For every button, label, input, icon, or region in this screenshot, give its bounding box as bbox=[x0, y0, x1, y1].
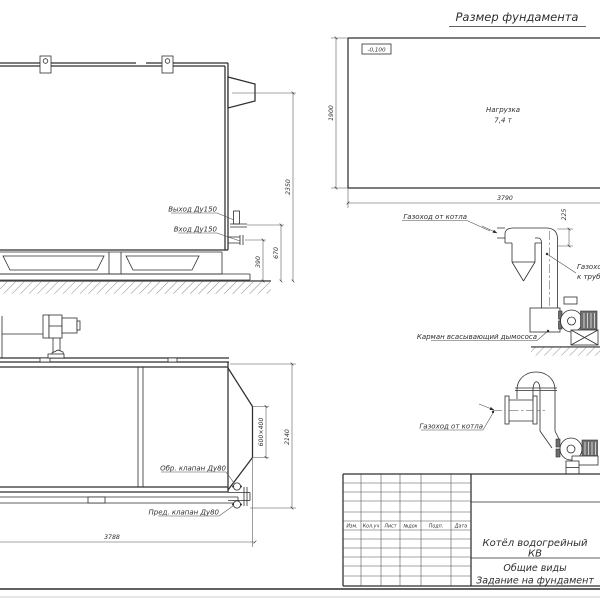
from-boiler-label-2: Газоход от котла bbox=[419, 423, 483, 431]
doc-type-line2: Задание на фундамент bbox=[476, 576, 594, 587]
dim-225: 225 bbox=[561, 209, 568, 221]
to-stack-leader bbox=[547, 254, 576, 273]
outlet-pipe-fitting bbox=[230, 211, 247, 227]
flue-vertical-duct bbox=[535, 228, 558, 320]
col-list: Лист bbox=[383, 524, 396, 530]
load-value: 7,4 т bbox=[494, 117, 512, 125]
elevation-mark: -0,100 bbox=[367, 48, 385, 54]
dim-3790: 3790 bbox=[497, 195, 513, 202]
plan-view-dimensions: 3788 2140 600×400 bbox=[0, 364, 296, 547]
ground-hatch-upper-detail bbox=[531, 347, 600, 356]
motor bbox=[62, 318, 77, 333]
outlet-label: Выход Ду150 bbox=[168, 206, 217, 214]
plan-body-outline bbox=[0, 358, 253, 503]
flue-duct-detail-lower: Газоход от котла bbox=[419, 372, 598, 474]
col-data: Дата bbox=[454, 524, 467, 530]
col-izm: Изм. bbox=[346, 524, 357, 530]
plan-right-pipework bbox=[228, 483, 250, 508]
flow-arrow bbox=[482, 226, 497, 233]
dim-670: 670 bbox=[273, 247, 280, 259]
flue-outlet-nozzle bbox=[228, 77, 255, 108]
engineering-drawing: Выход Ду150 Вход Ду150 2350 670 390 bbox=[0, 0, 600, 600]
grid-rows bbox=[343, 483, 471, 576]
safety-valve bbox=[233, 501, 240, 508]
boiler-side-view: Выход Ду150 Вход Ду150 2350 670 390 bbox=[0, 56, 296, 294]
check-valve bbox=[233, 483, 240, 490]
smoke-exhauster-plan bbox=[2, 315, 80, 362]
foundation-outline bbox=[348, 38, 600, 188]
elbow-assembly bbox=[515, 372, 560, 448]
load-label: Нагрузка bbox=[486, 106, 520, 114]
dim-1900: 1900 bbox=[328, 105, 335, 121]
boiler-outlet-duct bbox=[505, 396, 537, 424]
inlet-label: Вход Ду150 bbox=[174, 226, 218, 234]
flue-duct-detail-upper: Газоход от котла 225 Газоход к bbox=[402, 209, 600, 356]
check-valve-label: Обр. клапан Ду80 bbox=[160, 465, 226, 473]
safety-valve-label: Пред. клапан Ду80 bbox=[149, 509, 220, 517]
doc-type-line1: Общие виды bbox=[503, 563, 567, 574]
smoke-fan-2 bbox=[556, 438, 598, 474]
boiler-body-outline bbox=[0, 56, 255, 250]
flow-arrow-2 bbox=[479, 404, 494, 410]
foundation-plan: Размер фундамента -0,100 Нагрузка 7,4 т … bbox=[328, 10, 600, 208]
dim-3788: 3788 bbox=[104, 534, 120, 541]
dim-2350: 2350 bbox=[285, 179, 292, 195]
check-valve-leader bbox=[161, 472, 234, 483]
dim-2140: 2140 bbox=[284, 429, 291, 445]
from-boiler-leader bbox=[402, 221, 490, 232]
col-podp: Подп. bbox=[429, 524, 444, 530]
to-stack-label-1: Газоход bbox=[577, 263, 600, 271]
foundation-dimensions: 1900 3790 bbox=[328, 38, 600, 208]
boiler-plan-view: Обр. клапан Ду80 Пред. клапан Ду80 3788 … bbox=[0, 315, 296, 547]
offset-dimension: 225 bbox=[558, 209, 574, 246]
dim-390: 390 bbox=[255, 256, 262, 268]
cyclone bbox=[497, 228, 542, 281]
from-boiler-label: Газоход от котла bbox=[403, 213, 467, 221]
boiler-base-frame bbox=[0, 252, 250, 280]
drawing-sheet: Выход Ду150 Вход Ду150 2350 670 390 bbox=[0, 0, 600, 600]
ground-hatch bbox=[0, 281, 271, 294]
pocket-label: Карман всасывающий дымососа bbox=[417, 333, 537, 341]
dim-600x400: 600×400 bbox=[258, 418, 265, 447]
foundation-title: Размер фундамента bbox=[456, 10, 579, 24]
to-stack-label-2: к трубе bbox=[577, 273, 600, 281]
suction-pocket bbox=[530, 308, 560, 332]
inlet-pipe-fitting bbox=[228, 235, 243, 245]
smoke-fan bbox=[561, 297, 599, 345]
product-name-line1: Котёл водогрейный bbox=[483, 538, 588, 549]
product-name-line2: КВ bbox=[528, 549, 542, 560]
col-kol: Кол.уч bbox=[363, 524, 380, 530]
side-view-dimensions: 2350 670 390 bbox=[232, 93, 296, 281]
col-doc: №док bbox=[402, 524, 417, 530]
